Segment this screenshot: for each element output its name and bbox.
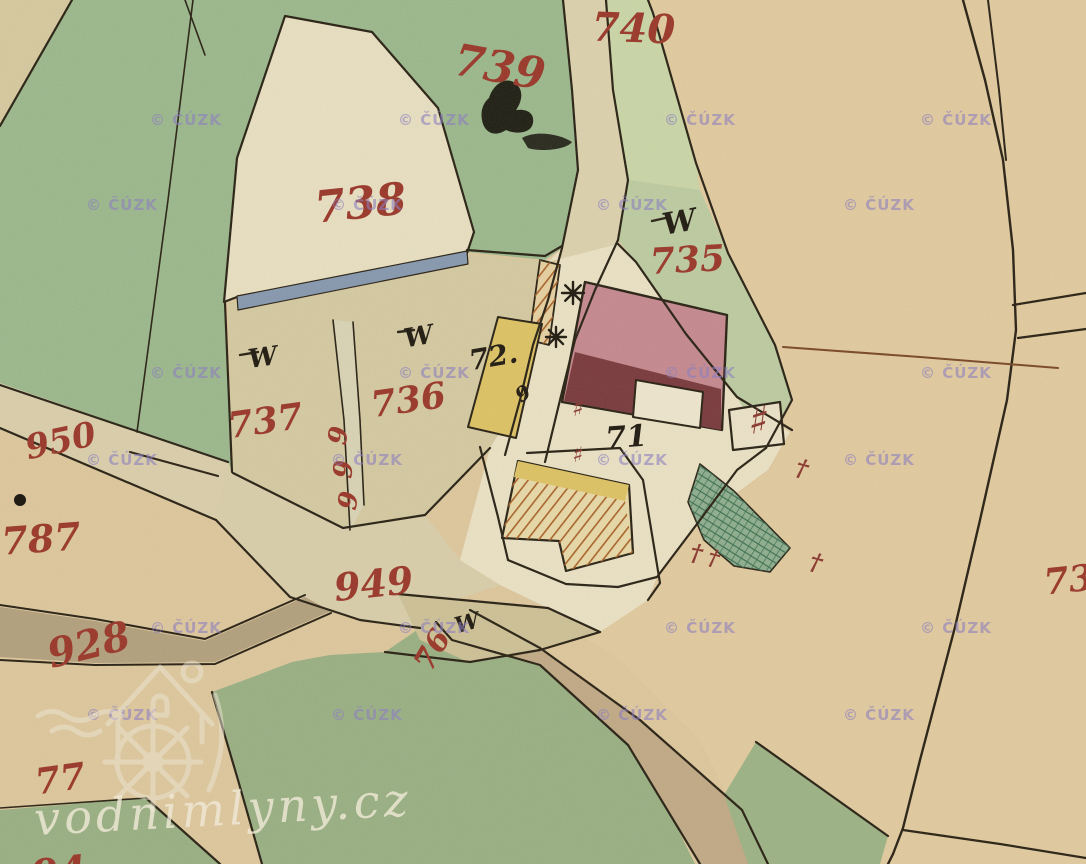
cuzk-copyright-watermark: © ČÚZK [86,195,158,214]
cadastral-map-canvas[interactable]: 7407397387357367379507879289497776739499… [0,0,1086,864]
cuzk-copyright-watermark: © ČÚZK [664,363,736,382]
cuzk-copyright-watermark: © ČÚZK [664,110,736,129]
cuzk-copyright-watermark: © ČÚZK [150,618,222,637]
cuzk-copyright-watermark: © ČÚZK [86,450,158,469]
paper-grain-overlay [0,0,1086,864]
cuzk-copyright-watermark: © ČÚZK [596,705,668,724]
cuzk-copyright-watermark: © ČÚZK [398,618,470,637]
cuzk-copyright-watermark: © ČÚZK [596,450,668,469]
map-viewport[interactable]: 7407397387357367379507879289497776739499… [0,0,1086,864]
cuzk-copyright-watermark: © ČÚZK [398,110,470,129]
cuzk-copyright-watermark: © ČÚZK [920,363,992,382]
cuzk-copyright-watermark: © ČÚZK [664,618,736,637]
cuzk-copyright-watermark: © ČÚZK [920,110,992,129]
cuzk-copyright-watermark: © ČÚZK [150,363,222,382]
cuzk-copyright-watermark: © ČÚZK [331,450,403,469]
cuzk-copyright-watermark: © ČÚZK [843,705,915,724]
cuzk-copyright-watermark: © ČÚZK [150,110,222,129]
cuzk-copyright-watermark: © ČÚZK [843,195,915,214]
cuzk-copyright-watermark: © ČÚZK [331,195,403,214]
cuzk-copyright-watermark: © ČÚZK [920,618,992,637]
cuzk-copyright-watermark: © ČÚZK [331,705,403,724]
cuzk-copyright-watermark: © ČÚZK [398,363,470,382]
cuzk-copyright-watermark: © ČÚZK [596,195,668,214]
cuzk-copyright-watermark: © ČÚZK [843,450,915,469]
